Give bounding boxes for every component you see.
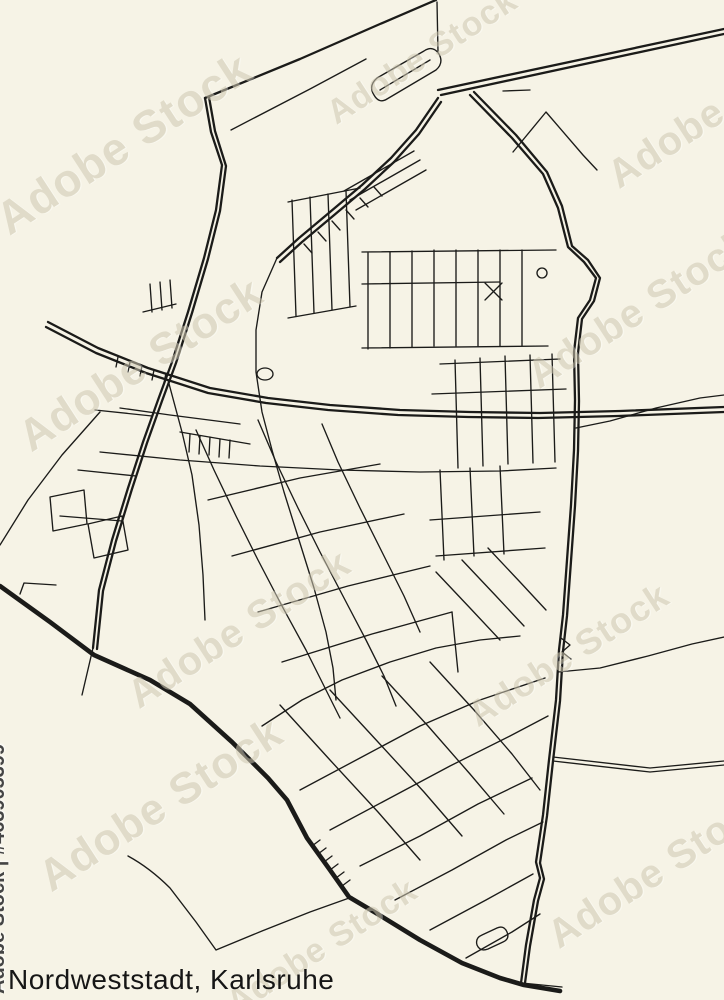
map-title: Nordweststadt, Karlsruhe (8, 964, 334, 996)
watermark-side: Adobe Stock | #463905399 (0, 744, 10, 994)
stock-map-image: Adobe Stock Adobe Stock Adobe Stock Adob… (0, 0, 724, 1000)
street-map-svg (0, 0, 724, 1000)
map-background (0, 0, 724, 1000)
